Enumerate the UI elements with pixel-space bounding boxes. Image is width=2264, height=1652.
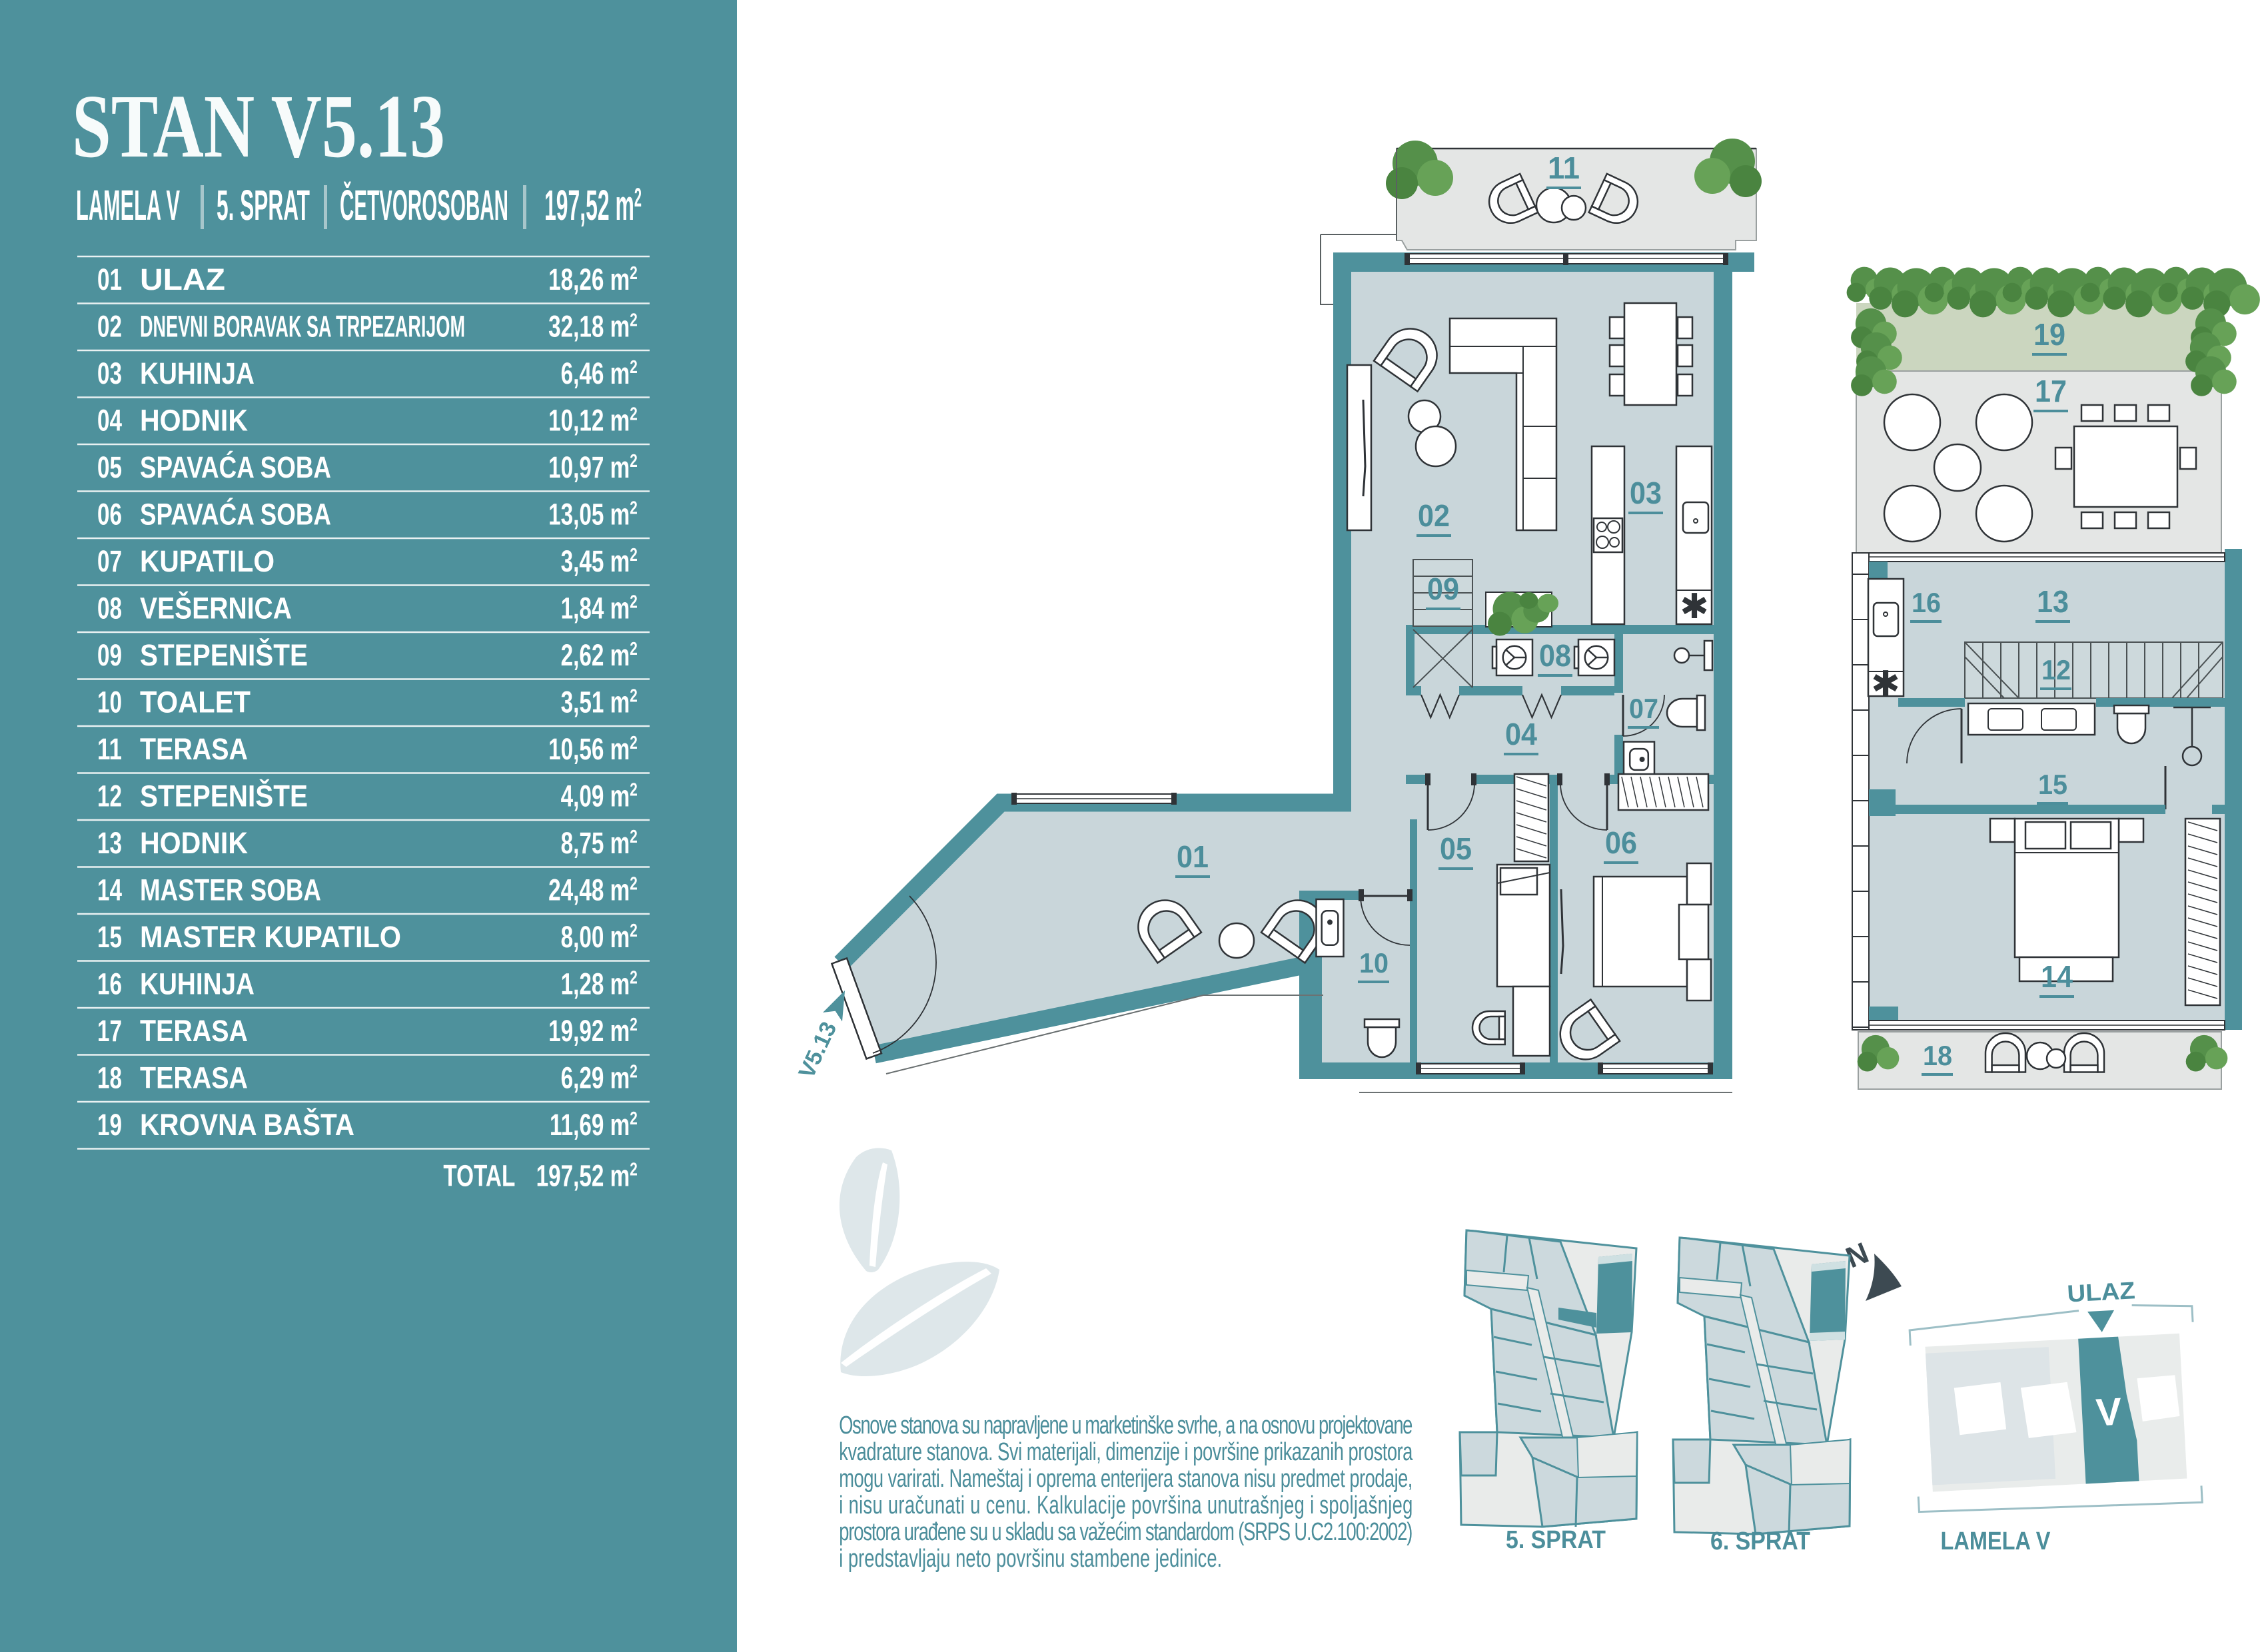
svg-text:KROVNA BAŠTA: KROVNA BAŠTA (140, 1108, 354, 1142)
svg-text:V: V (2095, 1390, 2123, 1435)
svg-text:02: 02 (1418, 498, 1450, 533)
svg-text:17: 17 (97, 1014, 122, 1048)
svg-text:i nisu uračunati u cenu. Kalku: i nisu uračunati u cenu. Kalkulacije pov… (839, 1491, 1413, 1519)
svg-text:MASTER SOBA: MASTER SOBA (140, 873, 321, 907)
svg-text:3,45 m2: 3,45 m2 (561, 545, 638, 578)
svg-text:ULAZ: ULAZ (2067, 1276, 2136, 1307)
svg-text:kvadrature stanova. Svi materi: kvadrature stanova. Svi materijali, dime… (839, 1438, 1413, 1466)
svg-text:07: 07 (97, 544, 122, 578)
svg-text:4,09 m2: 4,09 m2 (561, 780, 638, 813)
svg-text:04: 04 (1505, 717, 1537, 751)
svg-text:LAMELA V: LAMELA V (1941, 1527, 2051, 1555)
svg-text:10: 10 (97, 685, 122, 719)
svg-text:ULAZ: ULAZ (140, 262, 225, 296)
svg-text:03: 03 (97, 356, 122, 390)
svg-text:19: 19 (97, 1108, 122, 1142)
svg-text:TERASA: TERASA (140, 1014, 248, 1048)
svg-text:10,12 m2: 10,12 m2 (548, 404, 638, 438)
svg-text:24,48 m2: 24,48 m2 (548, 874, 638, 907)
svg-text:19: 19 (2033, 317, 2065, 352)
svg-text:02: 02 (97, 310, 122, 344)
svg-text:KUHINJA: KUHINJA (140, 967, 255, 1001)
svg-text:18,26 m2: 18,26 m2 (548, 263, 638, 296)
svg-text:14: 14 (97, 873, 122, 907)
svg-text:18: 18 (97, 1061, 122, 1095)
svg-text:12: 12 (2041, 654, 2071, 685)
svg-text:STAN V5.13: STAN V5.13 (72, 77, 445, 177)
svg-text:5. SPRAT: 5. SPRAT (217, 181, 310, 229)
svg-text:STEPENIŠTE: STEPENIŠTE (140, 638, 308, 672)
svg-text:KUPATILO: KUPATILO (140, 544, 275, 578)
svg-text:13,05 m2: 13,05 m2 (548, 498, 638, 532)
svg-text:V5.13: V5.13 (794, 1018, 842, 1082)
svg-text:14: 14 (2041, 959, 2073, 994)
svg-text:11: 11 (97, 732, 122, 766)
svg-text:2,62 m2: 2,62 m2 (561, 639, 638, 672)
svg-text:KUHINJA: KUHINJA (140, 356, 255, 390)
svg-text:8,75 m2: 8,75 m2 (561, 827, 638, 860)
svg-text:16: 16 (97, 967, 122, 1001)
svg-text:17: 17 (2035, 374, 2067, 408)
svg-text:11,69 m2: 11,69 m2 (550, 1108, 638, 1142)
svg-text:1,28 m2: 1,28 m2 (561, 968, 638, 1001)
svg-text:6,29 m2: 6,29 m2 (561, 1062, 638, 1095)
svg-text:HODNIK: HODNIK (140, 404, 248, 438)
svg-text:16: 16 (1912, 587, 1941, 618)
svg-text:TERASA: TERASA (140, 1061, 248, 1095)
svg-text:STEPENIŠTE: STEPENIŠTE (140, 779, 308, 813)
svg-text:6,46 m2: 6,46 m2 (561, 357, 638, 390)
svg-text:TOTAL: TOTAL (443, 1160, 515, 1193)
svg-text:09: 09 (97, 638, 122, 672)
svg-text:TOALET: TOALET (140, 685, 251, 719)
svg-text:08: 08 (97, 592, 122, 625)
svg-text:09: 09 (1427, 572, 1459, 606)
svg-text:01: 01 (97, 262, 122, 296)
svg-text:03: 03 (1630, 476, 1662, 510)
svg-text:12: 12 (97, 779, 122, 813)
svg-text:Osnove stanova su napravljene: Osnove stanova su napravljene u marketin… (839, 1412, 1413, 1440)
svg-text:i predstavljaju neto površinu: i predstavljaju neto površinu stambene j… (839, 1545, 1222, 1573)
svg-text:15: 15 (2038, 769, 2067, 800)
svg-text:19,92 m2: 19,92 m2 (548, 1015, 638, 1048)
svg-text:8,00 m2: 8,00 m2 (561, 921, 638, 954)
svg-text:ČETVOROSOBAN: ČETVOROSOBAN (340, 181, 508, 229)
svg-text:13: 13 (2037, 584, 2069, 619)
svg-text:197,52 m2: 197,52 m2 (544, 181, 642, 229)
svg-text:mogu varirati. Nameštaj i opre: mogu varirati. Nameštaj i oprema enterij… (839, 1465, 1413, 1493)
svg-text:06: 06 (1605, 825, 1637, 860)
svg-text:15: 15 (97, 920, 122, 954)
svg-text:HODNIK: HODNIK (140, 826, 248, 860)
svg-text:197,52 m2: 197,52 m2 (536, 1160, 638, 1193)
svg-text:LAMELA V: LAMELA V (76, 181, 180, 229)
svg-text:05: 05 (1440, 831, 1472, 866)
svg-text:08: 08 (1539, 638, 1571, 673)
svg-text:04: 04 (97, 404, 122, 438)
svg-text:10,56 m2: 10,56 m2 (548, 733, 638, 766)
svg-text:SPAVAĆA SOBA: SPAVAĆA SOBA (140, 450, 331, 484)
svg-text:1,84 m2: 1,84 m2 (561, 592, 638, 625)
svg-text:13: 13 (97, 826, 122, 860)
svg-text:32,18 m2: 32,18 m2 (548, 310, 638, 344)
svg-text:07: 07 (1629, 693, 1658, 724)
svg-text:6. SPRAT: 6. SPRAT (1710, 1527, 1810, 1555)
svg-text:06: 06 (97, 498, 122, 532)
svg-text:3,51 m2: 3,51 m2 (561, 686, 638, 719)
svg-text:DNEVNI BORAVAK SA TRPEZARIJOM: DNEVNI BORAVAK SA TRPEZARIJOM (140, 310, 465, 344)
svg-text:10,97 m2: 10,97 m2 (548, 451, 638, 484)
svg-text:prostora urađene su u skladu s: prostora urađene su u skladu sa važećim … (839, 1518, 1413, 1546)
svg-text:5. SPRAT: 5. SPRAT (1506, 1526, 1606, 1554)
svg-text:MASTER KUPATILO: MASTER KUPATILO (140, 920, 401, 954)
svg-text:01: 01 (1177, 839, 1209, 874)
svg-text:18: 18 (1923, 1040, 1952, 1071)
svg-text:VEŠERNICA: VEŠERNICA (140, 592, 292, 625)
svg-text:10: 10 (1359, 947, 1389, 979)
svg-text:TERASA: TERASA (140, 732, 248, 766)
svg-text:11: 11 (1548, 151, 1580, 185)
svg-text:✱: ✱ (1680, 588, 1709, 626)
svg-text:✱: ✱ (1871, 665, 1900, 703)
svg-text:05: 05 (97, 450, 122, 484)
svg-text:SPAVAĆA SOBA: SPAVAĆA SOBA (140, 498, 331, 532)
